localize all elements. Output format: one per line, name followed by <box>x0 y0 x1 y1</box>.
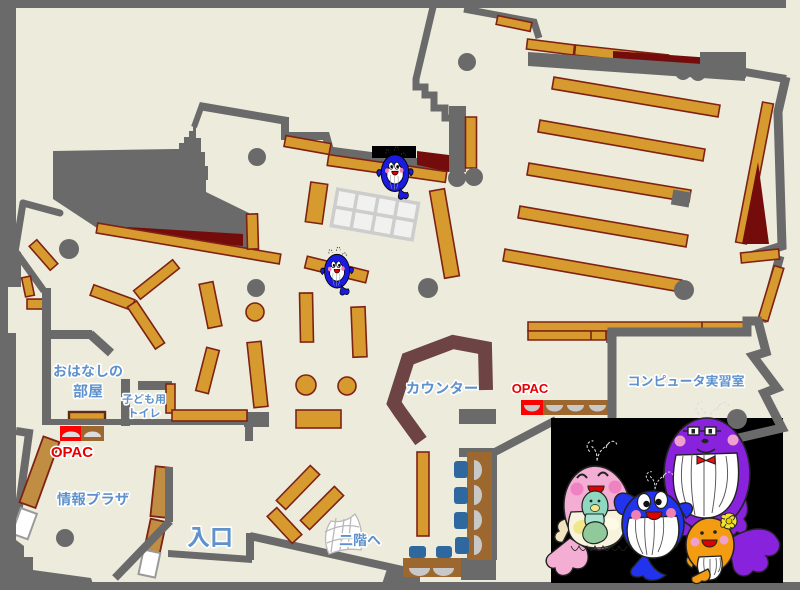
svg-text:OPAC: OPAC <box>512 381 549 396</box>
svg-text:OPAC: OPAC <box>51 444 93 461</box>
